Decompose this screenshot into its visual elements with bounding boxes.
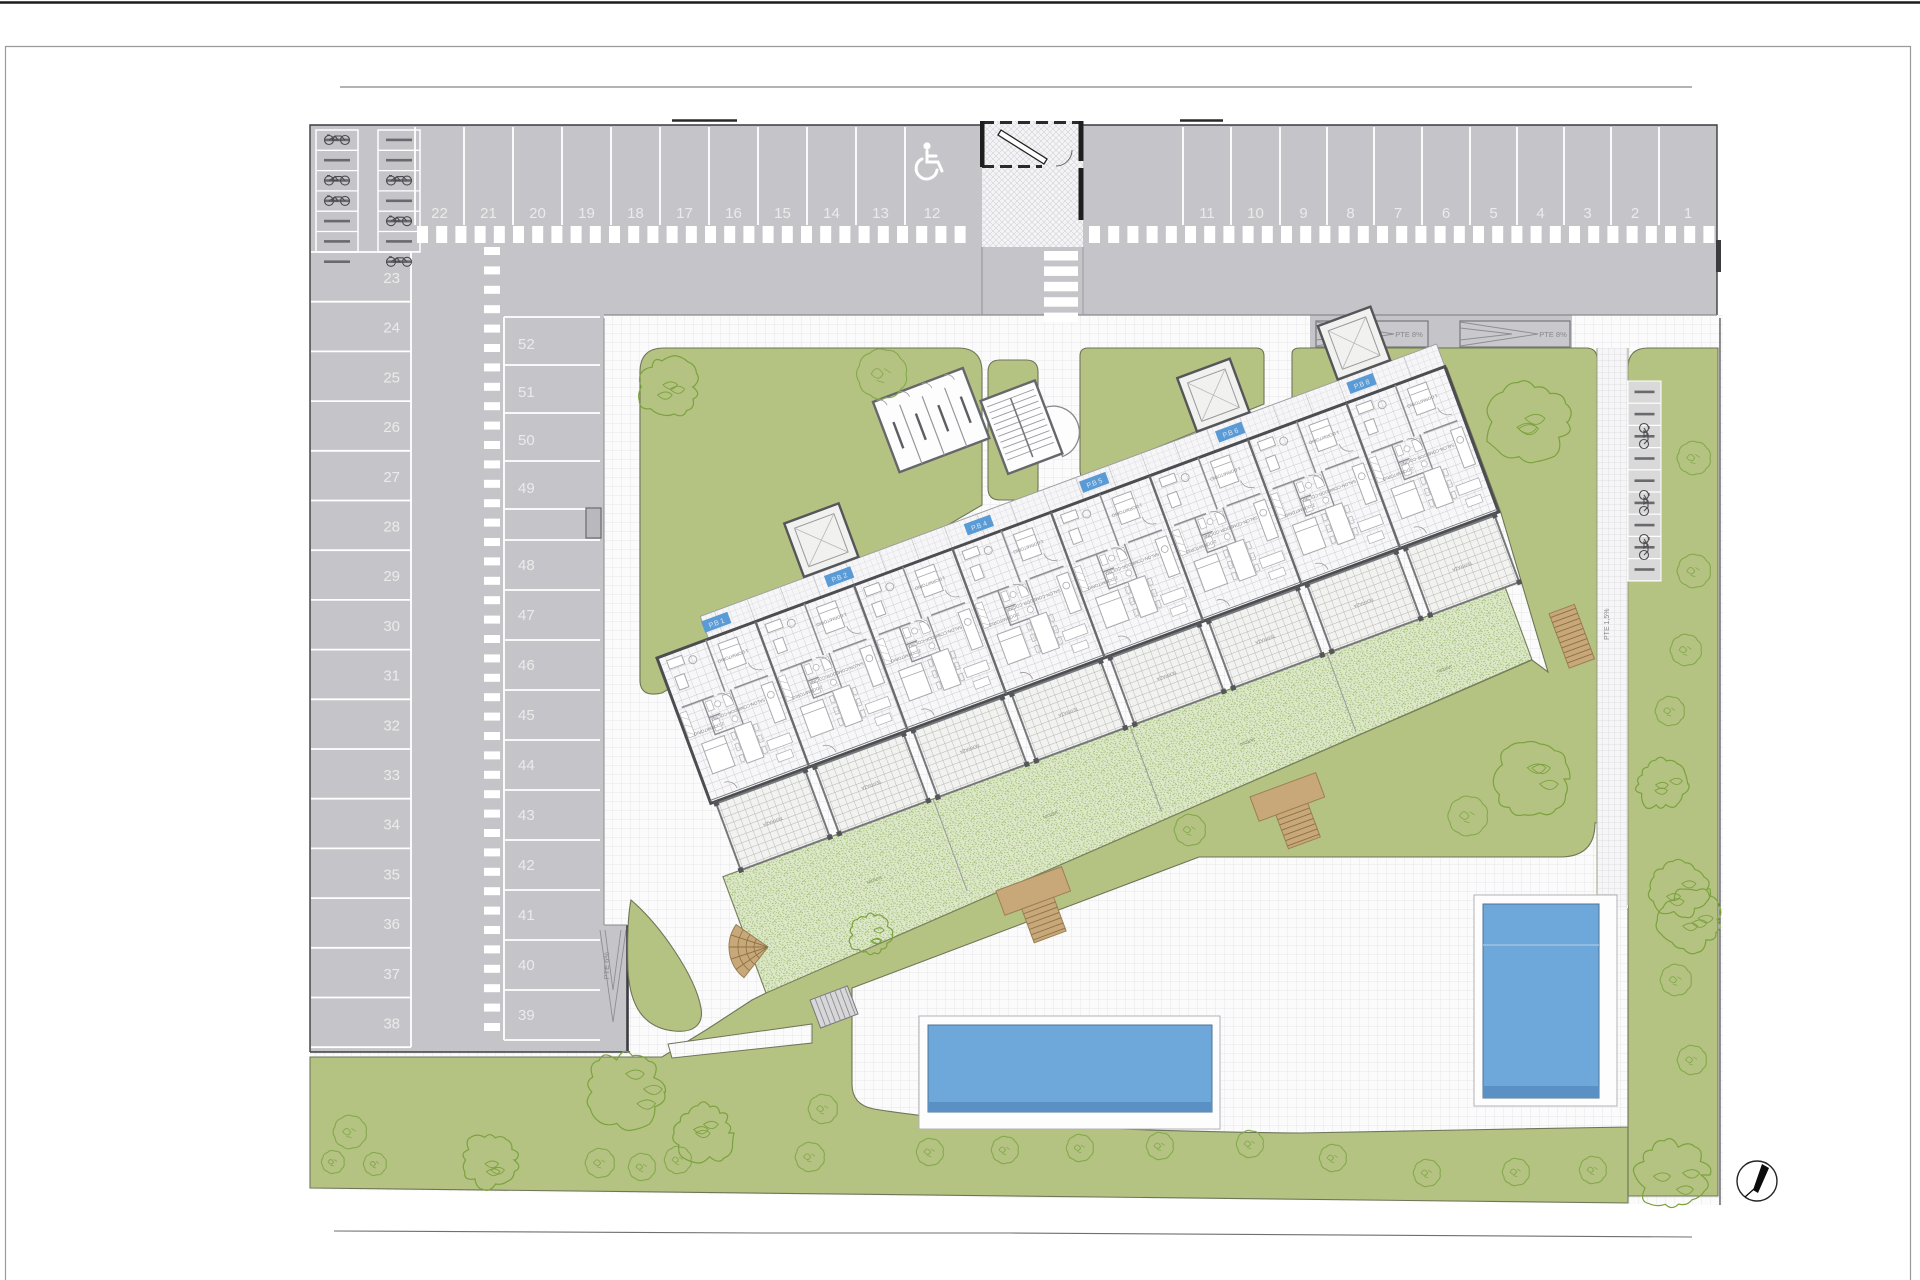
svg-text:51: 51: [518, 384, 535, 401]
svg-text:11: 11: [1199, 205, 1215, 222]
svg-text:9: 9: [1299, 205, 1307, 222]
svg-text:36: 36: [383, 916, 400, 933]
svg-text:50: 50: [518, 432, 535, 449]
svg-text:2: 2: [1631, 205, 1639, 222]
svg-text:19: 19: [578, 205, 595, 222]
svg-text:37: 37: [383, 966, 400, 983]
svg-text:PTE 1,5%: PTE 1,5%: [1604, 608, 1611, 640]
svg-text:PTE 6%: PTE 6%: [602, 952, 611, 980]
svg-text:25: 25: [383, 369, 400, 386]
svg-text:32: 32: [383, 717, 400, 734]
svg-text:28: 28: [383, 519, 400, 536]
svg-text:18: 18: [627, 205, 644, 222]
svg-text:4: 4: [1536, 205, 1544, 222]
svg-text:49: 49: [518, 480, 535, 497]
svg-text:45: 45: [518, 707, 535, 724]
svg-text:15: 15: [774, 205, 791, 222]
svg-text:29: 29: [383, 568, 400, 585]
svg-text:31: 31: [383, 668, 400, 685]
svg-text:34: 34: [383, 817, 400, 834]
svg-text:52: 52: [518, 336, 535, 353]
svg-text:40: 40: [518, 957, 535, 974]
svg-text:20: 20: [529, 205, 546, 222]
svg-text:47: 47: [518, 607, 535, 624]
svg-text:13: 13: [872, 205, 889, 222]
svg-text:33: 33: [383, 767, 400, 784]
svg-text:7: 7: [1394, 205, 1402, 222]
svg-text:38: 38: [383, 1016, 400, 1033]
svg-text:1: 1: [1684, 205, 1692, 222]
svg-text:30: 30: [383, 618, 400, 635]
svg-text:44: 44: [518, 757, 535, 774]
svg-text:41: 41: [518, 907, 535, 924]
svg-text:3: 3: [1583, 205, 1591, 222]
svg-text:PTE 8%: PTE 8%: [1539, 330, 1567, 339]
svg-text:27: 27: [383, 469, 400, 486]
svg-text:43: 43: [518, 807, 535, 824]
svg-text:14: 14: [823, 205, 840, 222]
svg-text:39: 39: [518, 1007, 535, 1024]
svg-text:10: 10: [1247, 205, 1264, 222]
svg-text:42: 42: [518, 857, 535, 874]
svg-text:12: 12: [924, 205, 941, 222]
svg-text:21: 21: [480, 205, 497, 222]
svg-text:46: 46: [518, 657, 535, 674]
svg-text:22: 22: [431, 205, 448, 222]
svg-text:26: 26: [383, 419, 400, 436]
svg-text:PTE 8%: PTE 8%: [1395, 330, 1423, 339]
svg-text:17: 17: [676, 205, 693, 222]
svg-text:35: 35: [383, 866, 400, 883]
svg-text:6: 6: [1442, 205, 1450, 222]
svg-text:48: 48: [518, 557, 535, 574]
svg-text:5: 5: [1489, 205, 1497, 222]
svg-text:23: 23: [383, 270, 400, 287]
svg-text:8: 8: [1346, 205, 1354, 222]
svg-text:16: 16: [725, 205, 742, 222]
svg-text:24: 24: [383, 320, 400, 337]
